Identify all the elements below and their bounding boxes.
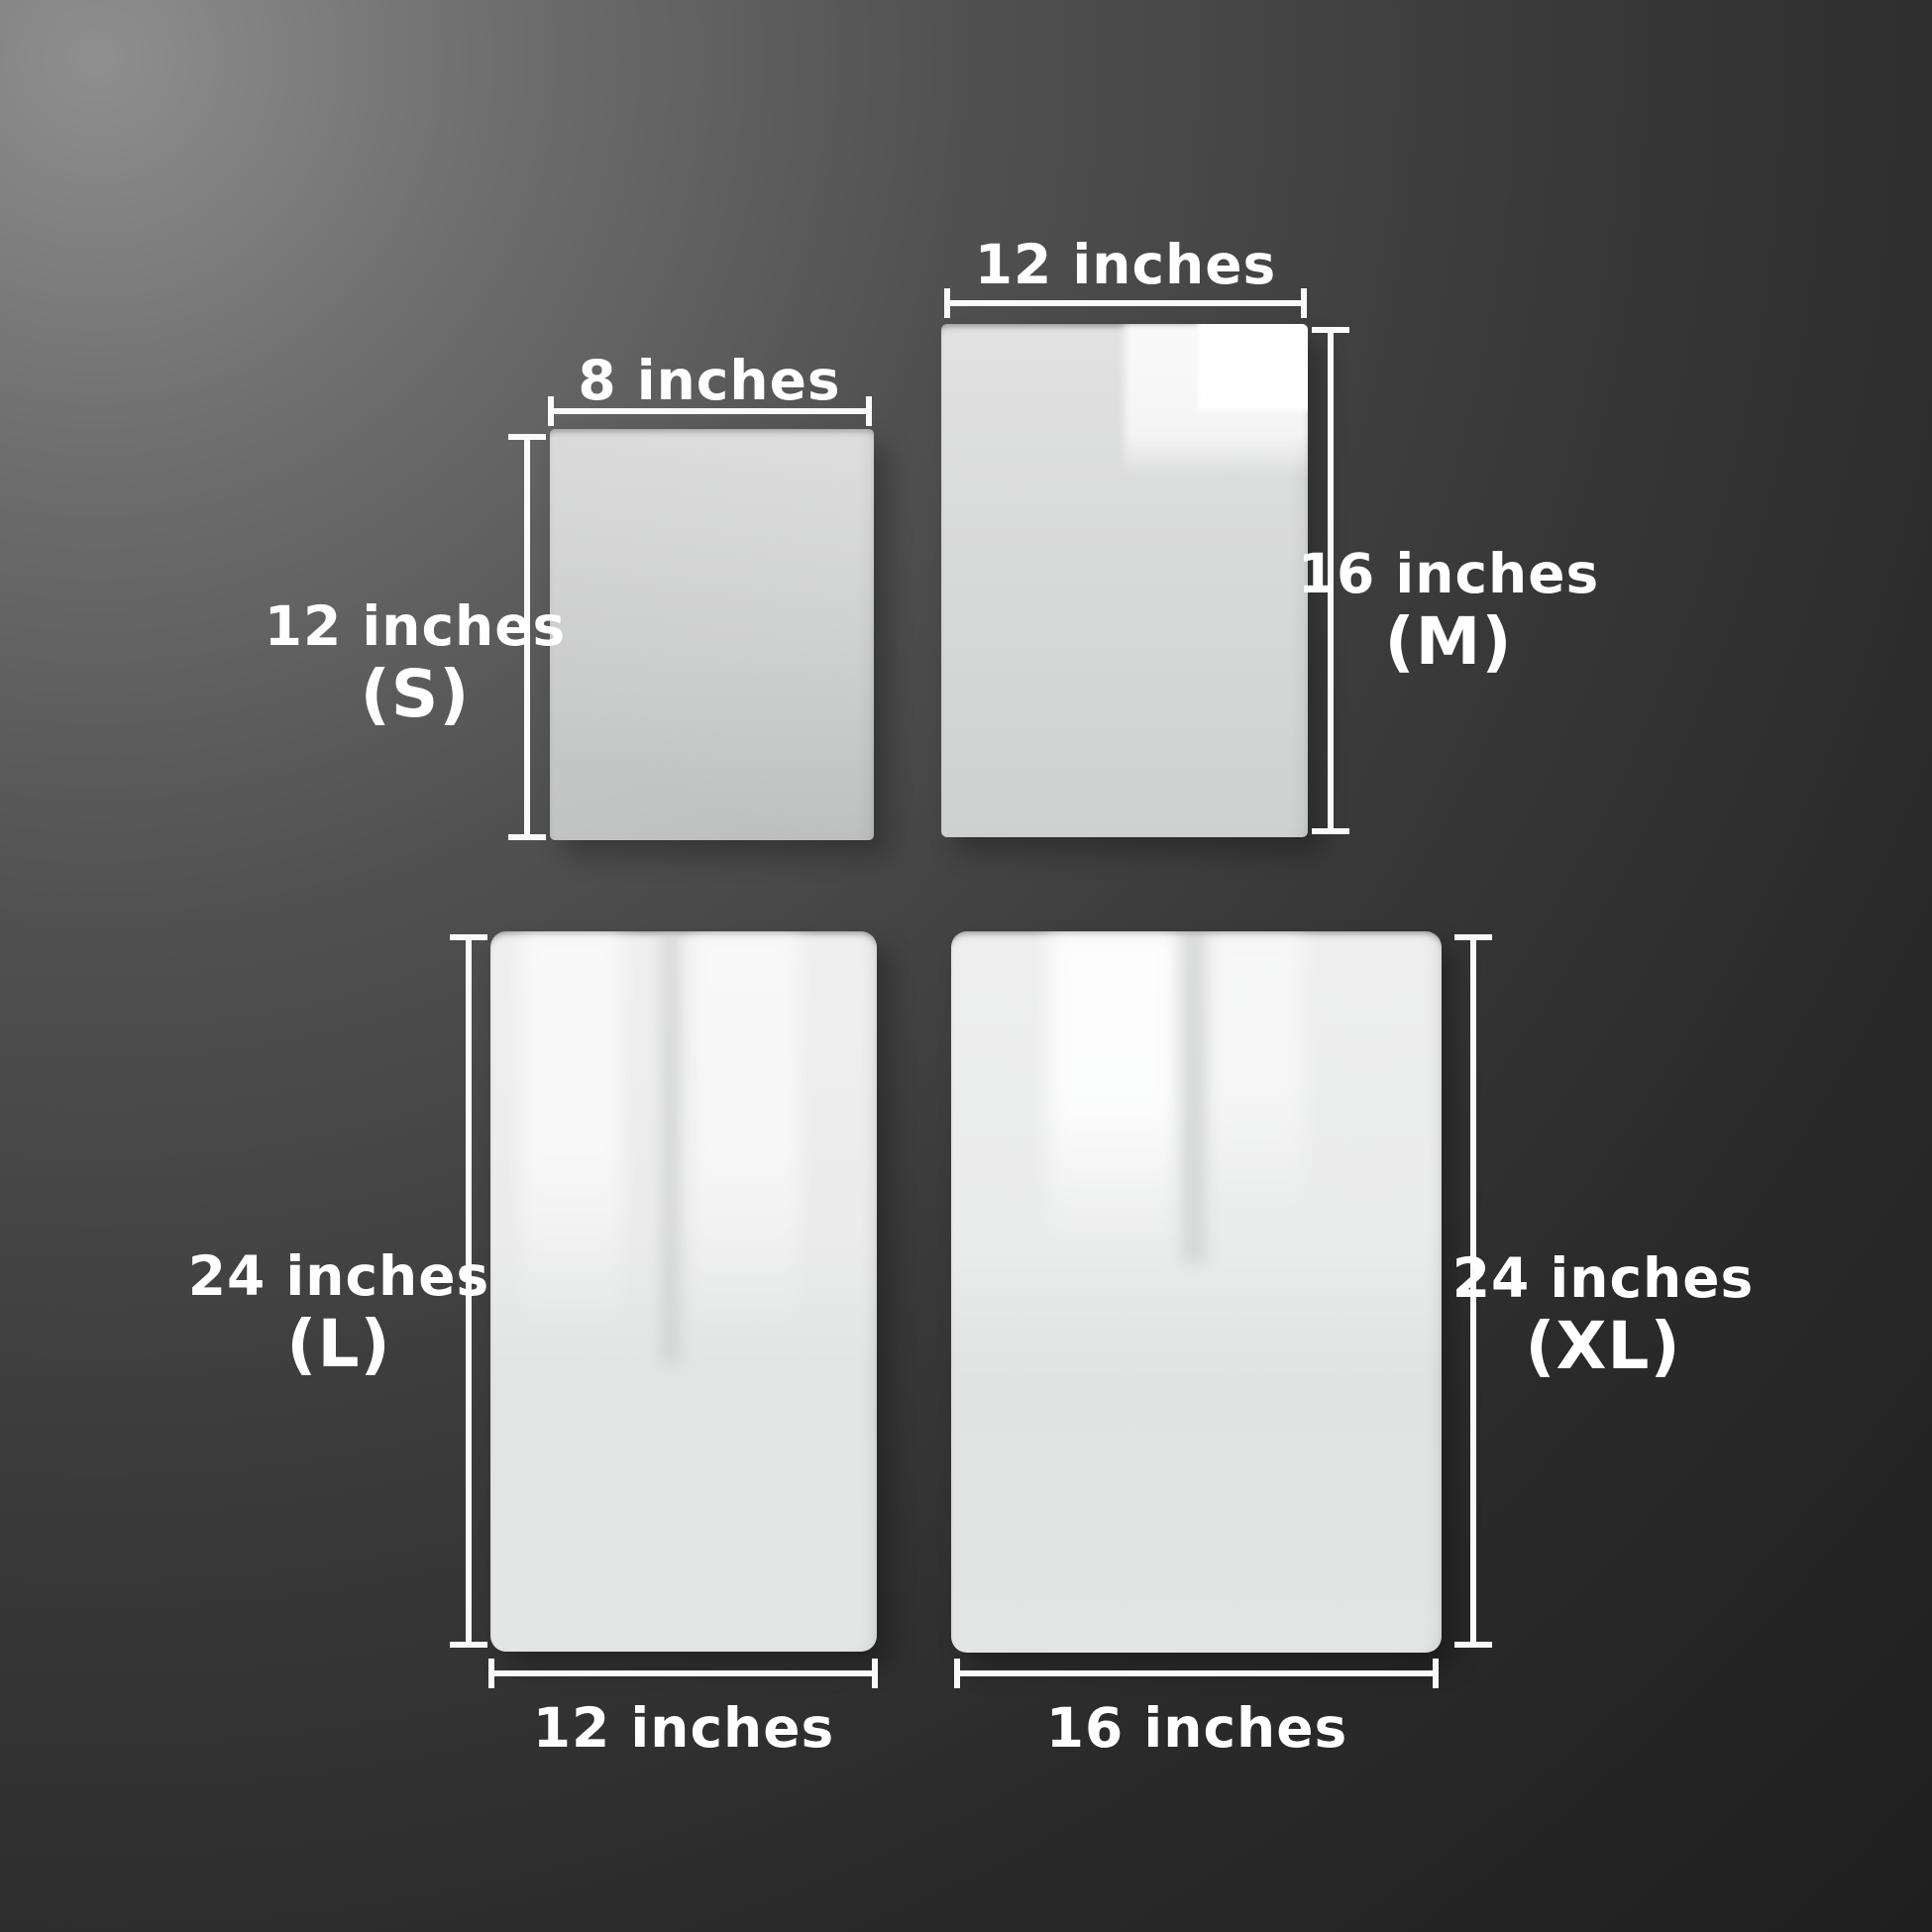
l-width-dimension-line (488, 1670, 878, 1676)
xl-width-dimension-line (954, 1670, 1439, 1676)
xl-height-label-block: 24 inches (XL) (1452, 1246, 1755, 1383)
panel-s-reflection (550, 429, 874, 840)
panel-xl-reflection-right (1206, 931, 1304, 1220)
xl-height-label: 24 inches (1452, 1246, 1755, 1310)
l-width-label: 12 inches (533, 1696, 835, 1760)
l-height-label: 24 inches (188, 1244, 490, 1308)
panel-s-sheet (550, 429, 874, 840)
panel-xl-reflection-left (1049, 931, 1177, 1248)
panel-l-reflection-left (521, 931, 621, 1335)
xl-width-label: 16 inches (1046, 1696, 1348, 1760)
s-height-label: 12 inches (265, 594, 567, 658)
xl-size-code: (XL) (1452, 1310, 1755, 1383)
panel-xl-sheet (951, 931, 1442, 1653)
panel-xl-reflection-streak (1182, 931, 1207, 1263)
m-height-label: 16 inches (1298, 542, 1600, 605)
l-height-label-block: 24 inches (L) (188, 1244, 490, 1381)
panel-l-reflection-right (692, 931, 800, 1335)
l-size-code: (L) (188, 1308, 490, 1381)
s-width-label: 8 inches (578, 349, 840, 412)
size-comparison-diagram: 8 inches 12 inches (S) 12 inches 16 inch… (0, 0, 1932, 1932)
s-height-label-block: 12 inches (S) (265, 594, 567, 731)
panel-m-reflection-highlight (1198, 324, 1308, 411)
panel-m-sheet (941, 324, 1308, 837)
m-height-label-block: 16 inches (M) (1298, 542, 1600, 679)
s-size-code: (S) (265, 658, 567, 731)
m-width-dimension-line (944, 300, 1307, 306)
panel-l-sheet (490, 931, 877, 1652)
m-width-label: 12 inches (975, 233, 1277, 296)
panel-l-reflection-streak (661, 931, 681, 1363)
m-size-code: (M) (1298, 605, 1600, 679)
